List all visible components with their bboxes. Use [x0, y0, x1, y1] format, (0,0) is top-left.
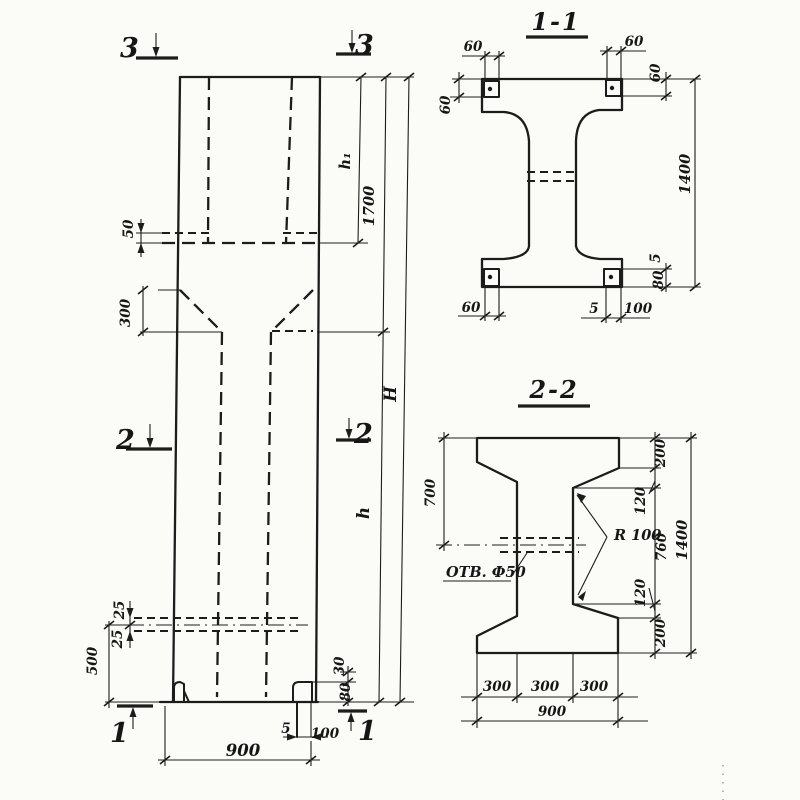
- dim-80: 80: [338, 682, 354, 701]
- dim-60-bottom-left: 60: [462, 300, 481, 316]
- taper-left: [180, 290, 222, 332]
- hole-lines: [436, 538, 586, 552]
- section-3-marker-left: 3: [120, 33, 139, 64]
- drawing-sheet: 3 3 2 2 1 1 50 300 h₁ 1700 H h 25 25 500…: [0, 0, 800, 800]
- section-1-1: 1-1: [438, 7, 701, 323]
- dim-200-bottom: 200: [653, 618, 669, 648]
- dim-120-top: 120: [633, 486, 649, 515]
- section-cut-markers: 3 3 2 2 1 1: [110, 30, 377, 749]
- base-plate-left: [174, 682, 184, 702]
- section-2-2-title: 2-2: [528, 375, 578, 404]
- hidden-core-edges: [128, 77, 317, 697]
- web-hidden-lines: [527, 172, 578, 181]
- section-1-marker-left: 1: [110, 718, 129, 749]
- dim-500: 500: [85, 646, 101, 675]
- dim-1400-s22: 1400: [674, 520, 691, 560]
- base-plate-right: [293, 682, 312, 702]
- dim-60-left: 60: [438, 95, 454, 114]
- dim-300: 300: [118, 298, 134, 327]
- column-left-edge: [173, 77, 180, 702]
- section-2-marker-right: 2: [353, 419, 373, 450]
- dim-25-bottom: 25: [110, 630, 126, 650]
- section-1-1-dimension-labels: 60 60 60 60 1400 5 80 60 5 100: [438, 34, 694, 317]
- dim-900: 900: [226, 741, 261, 760]
- dim-700: 700: [423, 478, 439, 507]
- web-edge-left: [217, 332, 222, 697]
- dim-300-3: 300: [580, 679, 609, 695]
- column-outline: [160, 77, 320, 702]
- section-1-marker-right: 1: [358, 716, 377, 747]
- taper-right: [272, 290, 313, 331]
- dim-60-top-right: 60: [625, 34, 644, 50]
- hole-callout: ОТВ. Ф50: [443, 553, 527, 581]
- dim-80-right: 80: [651, 270, 667, 289]
- dim-5-base: 5: [281, 721, 290, 737]
- dim-900-s22: 900: [538, 704, 567, 720]
- dim-100-bottom: 100: [624, 301, 653, 317]
- dim-300-1: 300: [483, 679, 512, 695]
- dim-1400-s11: 1400: [677, 154, 694, 194]
- dim-5-bottom: 5: [589, 301, 598, 317]
- section-2-2: 2-2 R 100 ОТВ. Ф50: [423, 375, 697, 728]
- section-3-marker-right: 3: [355, 30, 374, 61]
- dim-50: 50: [121, 219, 137, 238]
- dim-200-top: 200: [653, 438, 669, 468]
- dim-25-top: 25: [112, 601, 128, 621]
- dim-100-base: 100: [311, 726, 340, 742]
- technical-drawing: 3 3 2 2 1 1 50 300 h₁ 1700 H h 25 25 500…: [0, 0, 800, 800]
- dim-60-right: 60: [648, 63, 664, 82]
- section-1-1-title: 1-1: [531, 7, 580, 36]
- column-right-edge: [316, 77, 320, 702]
- dim-30: 30: [332, 656, 348, 675]
- section-2-marker-left: 2: [115, 425, 135, 456]
- dim-h1: h₁: [337, 153, 354, 170]
- dim-60-top-left: 60: [464, 39, 483, 55]
- dim-5-right: 5: [648, 253, 664, 262]
- dim-120-bottom: 120: [633, 578, 649, 607]
- base-plates: [174, 682, 312, 737]
- dim-1700: 1700: [361, 186, 378, 226]
- dim-300-2: 300: [531, 679, 560, 695]
- web-edge-right: [266, 332, 271, 697]
- dim-760: 760: [654, 532, 670, 561]
- elevation-view: 3 3 2 2 1 1 50 300 h₁ 1700 H h 25 25 500…: [85, 30, 414, 766]
- dim-h: h: [354, 507, 373, 519]
- i-section-outline: [482, 79, 622, 287]
- dim-H: H: [381, 385, 400, 403]
